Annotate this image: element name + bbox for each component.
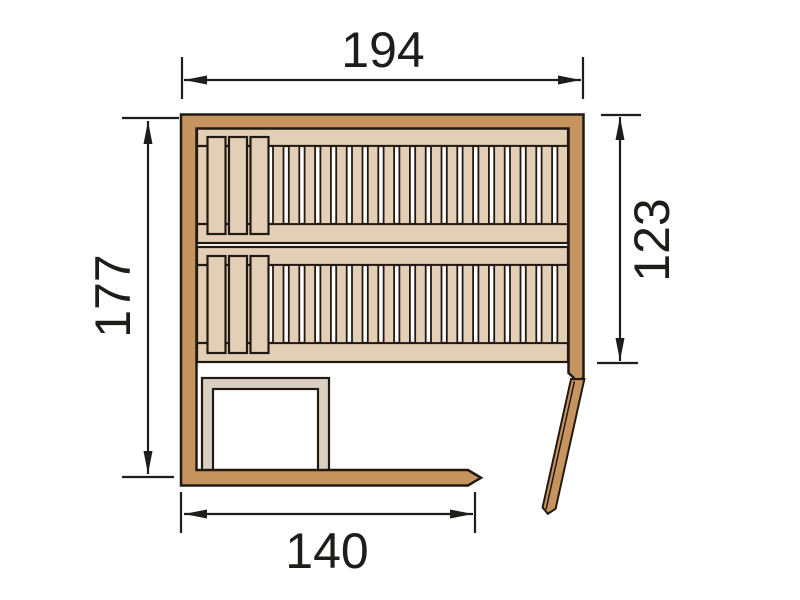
bench-slat (289, 265, 300, 343)
bench-slat (431, 265, 442, 343)
dimension-label-bottom: 140 (285, 523, 368, 579)
bench-wide-slat (251, 256, 269, 353)
bench-slat (557, 265, 568, 343)
dimension-label-right: 123 (624, 198, 680, 281)
sauna-plan-diagram: 194 177 123 140 (0, 0, 800, 600)
bench-slat (415, 265, 426, 343)
arrowhead-down (144, 451, 153, 474)
bench-slat (526, 146, 537, 224)
bench-wide-slat (208, 256, 226, 353)
bench-slat (384, 265, 395, 343)
bench-slat (510, 146, 521, 224)
arrowhead-right (558, 76, 581, 85)
bench-slat (557, 146, 568, 224)
bench-slat (542, 265, 553, 343)
bench-slat (463, 265, 474, 343)
bench-module-2 (197, 247, 568, 362)
bench-slat (336, 265, 347, 343)
bench-wide-slat (251, 137, 269, 234)
bench-slat (305, 265, 316, 343)
arrowhead-left (184, 510, 207, 519)
bench-slat (320, 265, 331, 343)
bench-slat (352, 146, 363, 224)
dimension-right: 123 (597, 115, 680, 363)
bench-slat (478, 265, 489, 343)
bench-slat (273, 146, 284, 224)
door-leaf (542, 376, 585, 515)
bench-slat (494, 146, 505, 224)
bench-slat (415, 146, 426, 224)
bench-slat (431, 146, 442, 224)
bench-slat (368, 146, 379, 224)
bench-slat (368, 265, 379, 343)
bench-slat (526, 265, 537, 343)
arrowhead-up (144, 121, 153, 144)
bench-module-1 (197, 128, 568, 243)
dimension-label-left: 177 (85, 254, 141, 337)
bench-wide-slat (208, 137, 226, 234)
arrowhead-right (450, 510, 473, 519)
bench-slat (510, 265, 521, 343)
bench-slat (447, 265, 458, 343)
bench-slat (399, 146, 410, 224)
bench-slat (384, 146, 395, 224)
bench-slat (447, 146, 458, 224)
arrowhead-left (184, 76, 207, 85)
bench-modules (197, 128, 568, 362)
arrowhead-down (616, 338, 625, 361)
dimension-top: 194 (182, 22, 583, 99)
dimension-bottom: 140 (181, 492, 475, 579)
door-leaf-panel (542, 376, 585, 515)
bench-slat (478, 146, 489, 224)
arrowhead-up (616, 117, 625, 140)
bench-slat (463, 146, 474, 224)
bench-slat (336, 146, 347, 224)
bench-slat (273, 265, 284, 343)
bench-slat (289, 146, 300, 224)
front-frame (202, 378, 329, 473)
front-frame-opening (213, 389, 318, 473)
bench-slat (320, 146, 331, 224)
bench-slat (305, 146, 316, 224)
bench-slat (352, 265, 363, 343)
bench-wide-slat (229, 256, 247, 353)
bench-slat (542, 146, 553, 224)
bench-wide-slat (229, 137, 247, 234)
dimension-left: 177 (85, 118, 179, 477)
dimension-label-top: 194 (341, 22, 424, 78)
drawing-canvas: 194 177 123 140 (0, 0, 800, 600)
bench-slat (399, 265, 410, 343)
bench-slat (494, 265, 505, 343)
